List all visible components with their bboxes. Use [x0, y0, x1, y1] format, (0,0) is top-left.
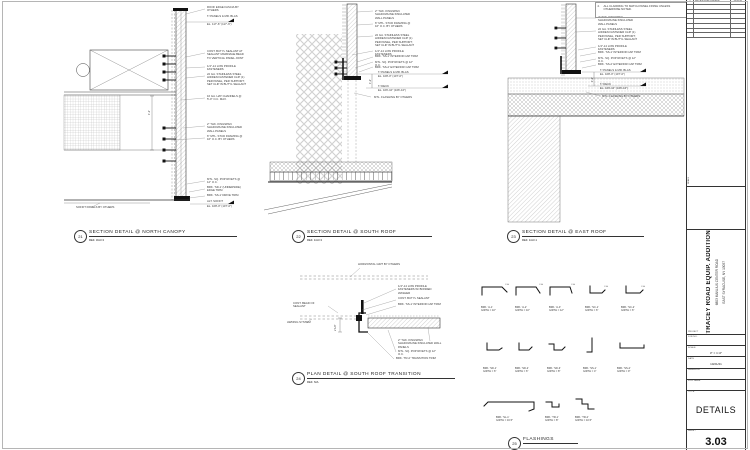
callout: 2" THK. KINGSPAN SHADOWLINE INSULATED WA…	[375, 10, 411, 20]
callout: 1/4"-14 LOW PROFILE FASTENERS	[207, 65, 243, 72]
field-value: 10/21/21	[687, 357, 745, 366]
revision-date: 10/21/21	[731, 0, 745, 4]
detail-title-text: SECTION DETAIL @ EAST ROOF	[522, 230, 644, 237]
flashing-label: BRK. 'SC-2'GIRTH = 6"	[621, 306, 635, 312]
callout: EL. 108'-0" (107'-0")	[207, 205, 247, 208]
detail-ref: REF. 3/A3.3	[89, 238, 237, 242]
ca-mark: C.A.	[505, 284, 509, 286]
ca-mark: C.A.	[641, 286, 645, 288]
callout: EL. 106'-10" (106'-10")	[600, 87, 644, 90]
callout: BRK. 'SD-1' (UNDERSIDE) EDGE TRIM	[207, 186, 243, 193]
detail-number-bubble: 22	[292, 230, 305, 243]
callout: BRK. 'SS-2' EXTERIOR CAP TRIM	[598, 63, 642, 66]
flashing-label: BRK. 'SD-3'GIRTH = 8"	[547, 367, 561, 373]
flashing-label: BRK. 'A-2'GIRTH = 10"	[515, 306, 530, 312]
callout: MTL. FLASHING BY OTHERS	[374, 96, 418, 99]
drawing-sheet: ROOF EDGE FASCIA BY OTHERS T/ PANELS & M…	[0, 0, 750, 450]
detail-title-25: 25 FLASHINGS	[508, 437, 578, 450]
callout: 1/4"-14 LOW PROFILE FASTENERS W/ BONDED …	[398, 285, 442, 295]
note-text: ALL CLADDING TO MATCH PANEL FINISH UNLES…	[604, 5, 685, 16]
sheet-title: DETAILS	[687, 391, 745, 415]
sheet-title-box: TITLE DETAILS	[687, 391, 745, 430]
project-info: TRACEY ROAD EQUIP. ADDITION 6803 MANLIUS…	[687, 230, 745, 335]
project-label: PROJECT	[688, 331, 698, 333]
field-drawn-by: DRAWN BY	[687, 369, 745, 380]
callout: BRK. 'SS-1' INTERIOR CAP TRIM	[375, 55, 419, 58]
ca-mark: C.A.	[604, 286, 608, 288]
callout: BRK. 'SS-2' EXTERIOR CAP TRIM	[375, 66, 419, 69]
flashing-label: BRK. 'A-1'GIRTH = 10"	[481, 306, 496, 312]
callout: CONT. BUTYL SEALANT AT SEALANT MARRIAGE …	[207, 50, 247, 60]
callout: EL. 108'-0" (107'-0")	[378, 75, 422, 78]
field-label: DATE	[688, 358, 694, 360]
callout: HORIZONTAL GIRT BY OTHERS	[358, 263, 402, 266]
callout: EL. 106'-10" (106'-10")	[378, 89, 422, 92]
revision-description: ISSUED FOR CONSTR.	[694, 0, 731, 4]
dimension-label: 1'-2"	[369, 79, 372, 84]
callout: 6" MTL. STUD FRAMING @ 16" O.C. BY OTHER…	[375, 22, 411, 29]
callout: BRK. 'SS-1' DRIVE TRIM	[207, 194, 243, 197]
callout: EL. 117'-6" (117'-6")	[207, 23, 247, 26]
callout: AWNING SYSTEM	[287, 321, 317, 324]
flashing-label: BRK. 'SD-1'GIRTH = 6"	[483, 367, 497, 373]
callout: BRK. 'SS-1' INTERIOR CAP TRIM	[598, 51, 642, 54]
consultant-area	[687, 187, 745, 230]
flashing-label: BRK. 'SL-1'GIRTH = 16.5"	[496, 416, 513, 422]
callout: CONT. BUTYL SEALANT	[398, 297, 442, 300]
sheet-number-box: SHEET 3.03	[687, 430, 745, 450]
callout: CONT. BEAD OF SEALANT	[293, 302, 323, 309]
general-note: 2. ALL CLADDING TO MATCH PANEL FINISH UN…	[595, 2, 687, 18]
detail-number-bubble: 25	[508, 437, 521, 450]
dimension-label: 2 1/2"	[334, 324, 337, 331]
sheet-number: 3.03	[687, 430, 745, 448]
detail-22-drawing	[264, 4, 448, 214]
flashing-label: BRK. 'A-3'GIRTH = 12"	[549, 306, 564, 312]
field-label: JOB NO.	[688, 336, 697, 338]
flashing-label: BRK. 'SS-2'GIRTH = 9"	[617, 367, 631, 373]
field-label: FILE NAME	[688, 380, 700, 382]
callout: 22 GA. STAINLESS STEEL HIDDEN FASTENER C…	[207, 73, 247, 86]
callout: SOFFIT PANELS BY OTHERS	[76, 206, 116, 209]
revision-number: 1	[687, 0, 694, 4]
revision-table: 1 ISSUED FOR CONSTR. 10/21/21	[687, 0, 745, 38]
sheet-label: SHEET	[688, 430, 696, 432]
detail-title-text: SECTION DETAIL @ SOUTH ROOF	[307, 230, 432, 237]
detail-title-text: FLASHINGS	[523, 437, 578, 444]
flashing-label: BRK. 'SD-2'GIRTH = 6"	[515, 367, 529, 373]
callout: 6" MTL. STUD FRAMING @ 16" O.C. BY OTHER…	[207, 135, 243, 142]
detail-title-21: 21 SECTION DETAIL @ NORTH CANOPY REF. 3/…	[74, 230, 237, 243]
detail-title-text: PLAN DETAIL @ SOUTH ROOF TRANSITION	[307, 372, 455, 379]
detail-number-bubble: 24	[292, 372, 305, 385]
project-address-line2: EAST SYRACUSE, NY 13057	[722, 261, 726, 304]
title-label: TITLE	[688, 391, 694, 393]
flashing-label: BRK. 'TR-1'GIRTH = 8"	[545, 416, 559, 422]
dimension-label: 1'-2"	[148, 110, 151, 115]
detail-number-bubble: 21	[74, 230, 87, 243]
callout: ALT. SOFFIT	[207, 200, 243, 203]
ca-mark: C.A.	[571, 284, 575, 286]
detail-number-bubble: 23	[507, 230, 520, 243]
detail-title-22: 22 SECTION DETAIL @ SOUTH ROOF REF. 1/A3…	[292, 230, 432, 243]
flashing-label: BRK. 'SS-1'GIRTH = 4"	[583, 367, 597, 373]
callout: EL. 108'-0" (107'-0")	[600, 73, 644, 76]
detail-title-text: SECTION DETAIL @ NORTH CANOPY	[89, 230, 237, 237]
field-label: DRAWN BY	[688, 369, 701, 371]
project-name: TRACEY ROAD EQUIP. ADDITION	[706, 230, 712, 334]
field-file-name: FILE NAME	[687, 380, 745, 391]
project-address-line1: 6803 MANLIUS CENTER ROAD	[715, 259, 719, 305]
title-block: 1 ISSUED FOR CONSTR. 10/21/21 SEALS TRAC…	[686, 0, 746, 450]
dimension-label: 1'-2"	[591, 77, 594, 82]
callout: 22 GA. STAINLESS STEEL HIDDEN FASTENER C…	[598, 28, 640, 41]
field-scale: SCALE 3" = 1'-0"	[687, 346, 745, 357]
callout: 2" THK. KINGSPAN SHADOWLINE INSULATED WA…	[207, 123, 243, 133]
seal-area: SEALS	[687, 38, 745, 187]
callout: T/ PANELS & MR. BLAS	[207, 15, 243, 18]
detail-title-23: 23 SECTION DETAIL @ EAST ROOF REF. 1/A3.…	[507, 230, 644, 243]
detail-title-24: 24 PLAN DETAIL @ SOUTH ROOF TRANSITION R…	[292, 372, 455, 385]
callout: ROOF EDGE FASCIA BY OTHERS	[207, 6, 243, 13]
callout: 16 GA. HAT CHANNELS @ 5'-0" O.C. MAX.	[207, 95, 243, 102]
callout: 22 GA. STAINLESS STEEL HIDDEN FASTENER C…	[375, 34, 417, 47]
flashing-profiles	[482, 286, 644, 411]
callout: MTL. SQ. POP RIVETS @ 12" O.C.	[207, 178, 243, 185]
callout: MTL. FLASHING BY OTHERS	[602, 95, 646, 98]
detail-23-drawing	[508, 4, 684, 222]
detail-ref: REF. 1/A3.3	[307, 238, 432, 242]
callout: BRK. 'SS-1' INTERIOR CAP TRIM	[398, 303, 442, 306]
callout: BRK. 'TR-2' TRANSITION TRIM	[396, 357, 436, 360]
flashing-label: BRK. 'TR-2'GIRTH = 10.5"	[575, 416, 592, 422]
detail-ref: REF. N/A	[307, 380, 455, 384]
detail-ref: REF. 1/A3.1	[522, 238, 644, 242]
field-date: DATE 10/21/21	[687, 357, 745, 368]
callout: 2" THK. KINGSPAN SHADOWLINE INSULATED WA…	[398, 339, 442, 349]
seal-label: SEALS	[688, 177, 690, 184]
ca-mark: C.A.	[539, 284, 543, 286]
field-job-no: JOB NO.	[687, 335, 745, 346]
field-label: SCALE	[688, 347, 696, 349]
flashing-label: BRK. 'SC-1'GIRTH = 6"	[585, 306, 599, 312]
